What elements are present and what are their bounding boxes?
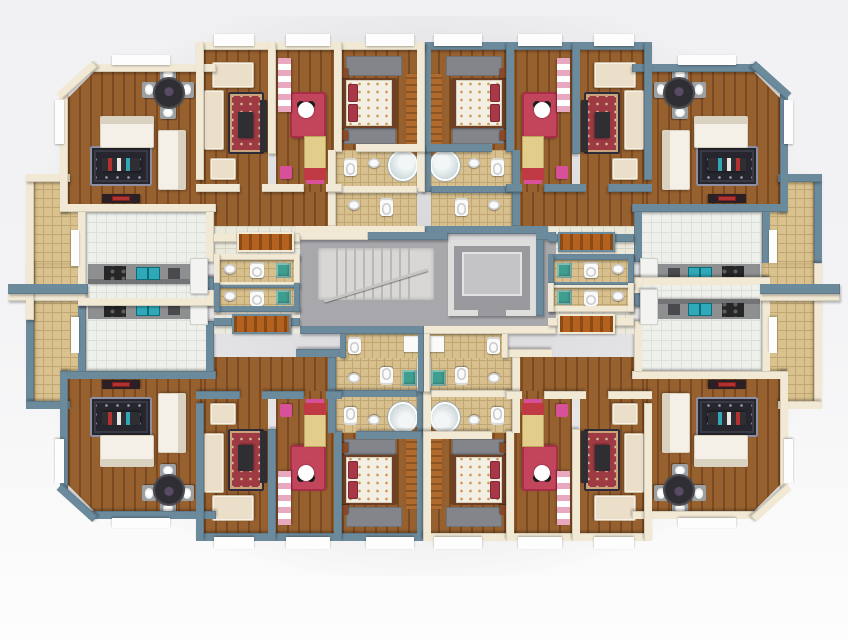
entry-door-bottom-left <box>232 314 291 334</box>
living-chaise <box>158 393 186 453</box>
kitchen-sink <box>136 267 160 280</box>
wall-kids-master <box>506 42 514 152</box>
unit-hallway-floor <box>512 357 644 391</box>
bed-pillow <box>348 104 358 122</box>
wc-wall <box>214 285 300 288</box>
salon-coffee-table <box>595 112 610 138</box>
rooms-bottom-wall <box>544 184 586 192</box>
living-sofa <box>100 435 154 467</box>
wc-wall <box>628 254 634 283</box>
living-bottom-wall <box>60 204 216 212</box>
toilet <box>584 290 598 306</box>
washer-unit <box>431 370 446 386</box>
living-coffee-table <box>708 158 746 171</box>
kids-bed <box>304 413 326 447</box>
sink <box>468 158 480 168</box>
kids-bed-pillow <box>522 168 544 180</box>
toilet <box>487 337 500 354</box>
entry-wall-stub <box>214 318 232 326</box>
kitchen-right-wall <box>206 321 214 371</box>
balcony-divider-fin <box>8 284 88 294</box>
wall-living-salon <box>196 403 204 541</box>
rooms-bottom-wall <box>196 391 240 399</box>
tv-screen <box>112 382 130 387</box>
tv-screen <box>112 196 130 201</box>
entry-wall-stub <box>548 318 558 326</box>
salon-tv-unit <box>260 100 267 152</box>
elevator <box>448 240 536 316</box>
washer-unit <box>557 290 572 305</box>
bath-mid-wall <box>336 186 417 193</box>
round-shower <box>432 404 458 431</box>
bath-mid-wall <box>431 186 512 193</box>
kids-window <box>286 34 330 46</box>
kids-wardrobe <box>557 471 570 525</box>
kids-wardrobe <box>278 58 291 112</box>
salon-armchair <box>612 403 638 425</box>
minnie-mouse-rug <box>522 92 558 138</box>
sink <box>368 415 380 425</box>
rooms-bottom-wall <box>544 391 586 399</box>
vestibule-wall <box>340 334 346 358</box>
tv-screen <box>718 196 736 201</box>
corridor-top-wall <box>300 232 368 240</box>
kitchen-bottom-wall <box>634 277 770 285</box>
toilet <box>344 158 357 176</box>
fridge <box>190 258 208 294</box>
center-divider-wall <box>417 42 425 192</box>
stair-enclosure-wall <box>368 232 448 240</box>
rooms-bottom-wall <box>262 184 304 192</box>
master-rug <box>346 56 402 76</box>
sink <box>348 200 360 210</box>
master-rug <box>452 126 504 144</box>
minnie-mouse-rug <box>290 92 326 138</box>
wc-wall <box>548 283 554 312</box>
kids-bed-pillow <box>304 403 326 415</box>
minnie-face <box>534 102 550 118</box>
master-window <box>434 537 482 549</box>
balcony-divider-fin <box>760 284 840 294</box>
living-bay-window <box>112 518 170 528</box>
wc-wall <box>214 283 220 312</box>
vestibule-wall <box>502 334 508 358</box>
unit-hallway-floor <box>204 192 336 226</box>
floor-plan-scene <box>0 0 848 640</box>
wc-wall <box>294 283 300 312</box>
wc-wall <box>628 283 634 312</box>
kids-bed-blanket <box>524 180 542 184</box>
wash-cabinet <box>428 336 444 352</box>
living-bay-window <box>678 518 736 528</box>
kids-bed-blanket <box>524 399 542 403</box>
elevator-door-opening <box>478 302 506 316</box>
salon-chaise <box>624 90 644 150</box>
salon-sofa <box>212 495 254 521</box>
living-chaise <box>158 130 186 190</box>
rooms-bottom-wall <box>326 184 342 192</box>
kids-bed-pillow <box>522 403 544 415</box>
kids-window <box>518 537 562 549</box>
kids-chair <box>556 404 568 417</box>
wall-salon-kids <box>268 42 276 154</box>
fridge <box>640 289 658 325</box>
salon-coffee-table <box>238 112 253 138</box>
bed-pillow <box>348 84 358 102</box>
living-bottom-wall <box>632 371 788 379</box>
center-divider-wall <box>423 391 431 541</box>
living-left-window <box>784 100 793 144</box>
kids-bed <box>304 136 326 170</box>
salon-armchair <box>210 403 236 425</box>
toilet <box>380 198 393 216</box>
salon-window <box>594 34 634 46</box>
wc-wall <box>214 254 220 283</box>
salon-chaise <box>624 433 644 493</box>
dining-table <box>665 476 693 504</box>
master-wardrobe <box>431 427 442 509</box>
salon-tv-unit <box>581 100 588 152</box>
kids-bed-pillow <box>304 168 326 180</box>
rooms-bottom-wall <box>506 391 522 399</box>
rooms-bottom-wall <box>608 391 652 399</box>
living-bay-window <box>678 55 736 65</box>
wall-living-salon <box>196 42 204 180</box>
salon-window <box>214 537 254 549</box>
salon-sofa <box>594 495 636 521</box>
master-wardrobe <box>406 427 417 509</box>
wc-wall <box>214 254 300 260</box>
balcony-outer-wall <box>26 174 34 320</box>
dining-chair <box>672 106 688 119</box>
corridor-bottom-wall <box>424 326 556 334</box>
wall-kids-master <box>334 431 342 541</box>
living-bottom-wall <box>60 371 216 379</box>
living-sofa <box>694 116 748 148</box>
toilet <box>455 367 468 385</box>
kids-bed <box>522 413 544 447</box>
counter-appliance <box>668 304 680 315</box>
rooms-bottom-wall <box>506 184 522 192</box>
kitchen-window <box>71 230 79 266</box>
stove <box>104 266 126 280</box>
dining-table <box>155 476 183 504</box>
living-left-window <box>55 439 64 483</box>
dining-table <box>665 79 693 107</box>
salon-sofa <box>212 62 254 88</box>
entry-wall-stub <box>214 234 237 242</box>
bed-pillow <box>490 461 500 479</box>
wall-kids-master <box>334 42 342 152</box>
toilet <box>491 407 504 425</box>
living-coffee-table <box>102 412 140 425</box>
sink <box>468 415 480 425</box>
toilet <box>348 337 361 354</box>
rooms-bottom-wall <box>608 184 652 192</box>
living-chaise <box>662 393 690 453</box>
entry-wall-stub <box>548 234 558 242</box>
wc-wall <box>548 285 634 288</box>
washer-unit <box>557 263 572 278</box>
unit-hallway-floor <box>204 357 336 391</box>
salon-window <box>594 537 634 549</box>
rooms-bottom-wall <box>262 391 304 399</box>
kids-bed-blanket <box>306 399 324 403</box>
salon-sofa <box>594 62 636 88</box>
salon-coffee-table <box>238 445 253 471</box>
salon-armchair <box>210 158 236 180</box>
balcony-divider-fin <box>8 294 88 301</box>
bed-pillow <box>490 481 500 499</box>
elevator-side-wall <box>536 240 544 316</box>
sink <box>368 158 380 168</box>
balcony-divider-fin <box>760 294 840 301</box>
sink <box>488 200 500 210</box>
living-coffee-table <box>708 412 746 425</box>
kids-chair <box>280 404 292 417</box>
minnie-mouse-rug <box>522 445 558 491</box>
kitchen-floor <box>642 285 762 371</box>
dining-chair <box>692 82 706 98</box>
master-bath-wall <box>356 144 425 152</box>
toilet <box>250 262 264 278</box>
toilet <box>380 367 393 385</box>
wall-salon-kids <box>572 42 580 154</box>
stove <box>722 303 744 317</box>
minnie-mouse-rug <box>290 445 326 491</box>
tv-screen <box>718 382 736 387</box>
living-left-window <box>55 100 64 144</box>
kids-bed <box>522 136 544 170</box>
dining-chair <box>160 106 176 119</box>
dining-table <box>155 79 183 107</box>
minnie-face <box>298 102 314 118</box>
counter-appliance <box>168 268 180 279</box>
bath-mid-wall <box>336 390 417 397</box>
kids-chair <box>556 166 568 179</box>
minnie-face <box>298 465 314 481</box>
kids-bed-blanket <box>306 180 324 184</box>
corridor-bottom-wall <box>300 326 424 334</box>
salon-tv-unit <box>260 431 267 483</box>
round-shower <box>390 152 416 179</box>
wall-salon-kids <box>268 429 276 541</box>
unit-hallway-floor <box>512 192 644 226</box>
kitchen-bottom-wall <box>78 298 214 306</box>
living-left-window <box>784 439 793 483</box>
kitchen-sink <box>688 303 712 316</box>
kitchen-right-wall <box>634 212 642 262</box>
round-shower <box>432 152 458 179</box>
kids-wardrobe <box>278 471 291 525</box>
wc-wall <box>548 254 634 260</box>
round-shower <box>390 404 416 431</box>
toilet <box>455 198 468 216</box>
toilet <box>584 262 598 278</box>
kitchen-window <box>769 230 777 266</box>
wc-wall <box>548 254 554 283</box>
sink <box>224 291 236 301</box>
toilet <box>344 407 357 425</box>
center-divider-wall <box>424 334 430 392</box>
master-rug <box>446 507 502 527</box>
kitchen-right-wall <box>634 321 642 371</box>
master-bath-wall <box>423 431 492 439</box>
master-rug <box>344 126 396 144</box>
dining-chair <box>142 485 156 501</box>
wc-wall <box>294 254 300 283</box>
sink <box>348 373 360 383</box>
bed-pillow <box>490 104 500 122</box>
kids-window <box>518 34 562 46</box>
living-sofa <box>694 435 748 467</box>
kids-window <box>286 537 330 549</box>
rooms-bottom-wall <box>326 391 342 399</box>
minnie-face <box>534 465 550 481</box>
living-sofa <box>100 116 154 148</box>
master-bath-wall <box>356 431 425 439</box>
sink <box>612 264 624 274</box>
living-chaise <box>662 130 690 190</box>
bed-pillow <box>490 84 500 102</box>
wall-kids-master <box>506 431 514 541</box>
living-bottom-wall <box>632 204 788 212</box>
wall-salon-kids <box>572 429 580 541</box>
bed-pillow <box>348 481 358 499</box>
washer-unit <box>276 263 291 278</box>
salon-window <box>214 34 254 46</box>
dining-chair <box>142 82 156 98</box>
master-bath-wall <box>423 144 492 152</box>
salon-chaise <box>204 90 224 150</box>
entry-door-top-right <box>558 232 615 252</box>
wc-wall <box>548 306 634 312</box>
kitchen-floor <box>86 212 206 298</box>
wc-wall <box>214 306 300 312</box>
rooms-bottom-wall <box>196 184 240 192</box>
salon-tv-unit <box>581 431 588 483</box>
master-window <box>366 537 414 549</box>
entry-door-top-left <box>237 232 294 252</box>
salon-chaise <box>204 433 224 493</box>
bath-mid-wall <box>431 390 512 397</box>
kitchen-right-wall <box>206 212 214 262</box>
wall-living-salon <box>644 42 652 180</box>
sink <box>488 373 500 383</box>
kitchen-window <box>769 317 777 353</box>
toilet <box>250 290 264 306</box>
staircase <box>318 248 434 300</box>
salon-coffee-table <box>595 445 610 471</box>
kids-wardrobe <box>557 58 570 112</box>
sink <box>224 264 236 274</box>
entry-door-bottom-right <box>558 314 615 334</box>
sink <box>612 291 624 301</box>
master-rug <box>346 507 402 527</box>
living-bay-window <box>112 55 170 65</box>
toilet <box>491 158 504 176</box>
master-rug <box>446 56 502 76</box>
bed-pillow <box>348 461 358 479</box>
master-window <box>366 34 414 46</box>
master-window <box>434 34 482 46</box>
dining-chair <box>692 485 706 501</box>
living-coffee-table <box>102 158 140 171</box>
washer-unit <box>402 370 417 386</box>
elevator-cab <box>462 252 522 296</box>
wall-living-salon <box>644 403 652 541</box>
salon-armchair <box>612 158 638 180</box>
washer-unit <box>276 290 291 305</box>
kids-chair <box>280 166 292 179</box>
kitchen-window <box>71 317 79 353</box>
